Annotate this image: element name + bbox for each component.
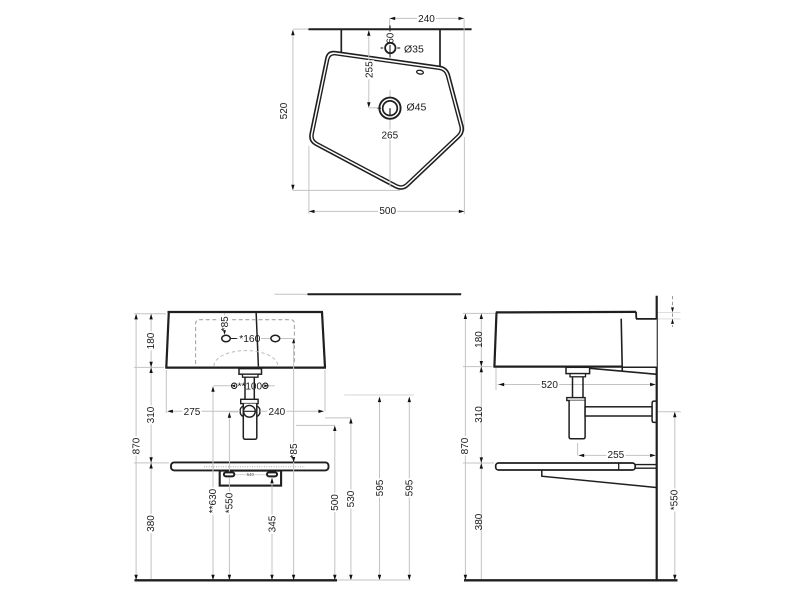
svg-text:275: 275 <box>184 407 201 418</box>
svg-text:595: 595 <box>375 479 386 496</box>
svg-text:180: 180 <box>474 331 485 348</box>
svg-text:500: 500 <box>330 494 341 511</box>
svg-text:380: 380 <box>146 515 157 532</box>
svg-text:*550: *550 <box>670 489 681 510</box>
svg-text:380: 380 <box>474 513 485 530</box>
svg-text:520: 520 <box>541 380 558 391</box>
svg-text:255: 255 <box>608 450 625 461</box>
svg-text:180: 180 <box>146 332 157 349</box>
svg-text:500: 500 <box>379 206 396 217</box>
svg-text:310: 310 <box>474 406 485 423</box>
svg-text:345: 345 <box>267 515 278 532</box>
svg-text:**630: **630 <box>208 488 219 513</box>
svg-text:530: 530 <box>346 490 357 507</box>
svg-text:265: 265 <box>381 130 398 141</box>
svg-text:Ø45: Ø45 <box>407 102 427 114</box>
svg-text:*85: *85 <box>289 443 300 458</box>
svg-text:*550: *550 <box>225 492 236 513</box>
svg-text:520: 520 <box>279 102 290 119</box>
svg-text:540: 540 <box>247 472 255 477</box>
svg-text:310: 310 <box>146 406 157 423</box>
svg-text:*85: *85 <box>220 316 231 331</box>
svg-text:255: 255 <box>365 61 376 78</box>
svg-text:Ø35: Ø35 <box>404 43 424 55</box>
svg-text:870: 870 <box>131 437 142 454</box>
svg-text:240: 240 <box>418 14 435 25</box>
svg-text:870: 870 <box>460 437 471 454</box>
svg-text:240: 240 <box>269 407 286 418</box>
svg-text:595: 595 <box>405 479 416 496</box>
svg-text:**100: **100 <box>238 381 263 392</box>
svg-text:*160: *160 <box>239 334 260 345</box>
